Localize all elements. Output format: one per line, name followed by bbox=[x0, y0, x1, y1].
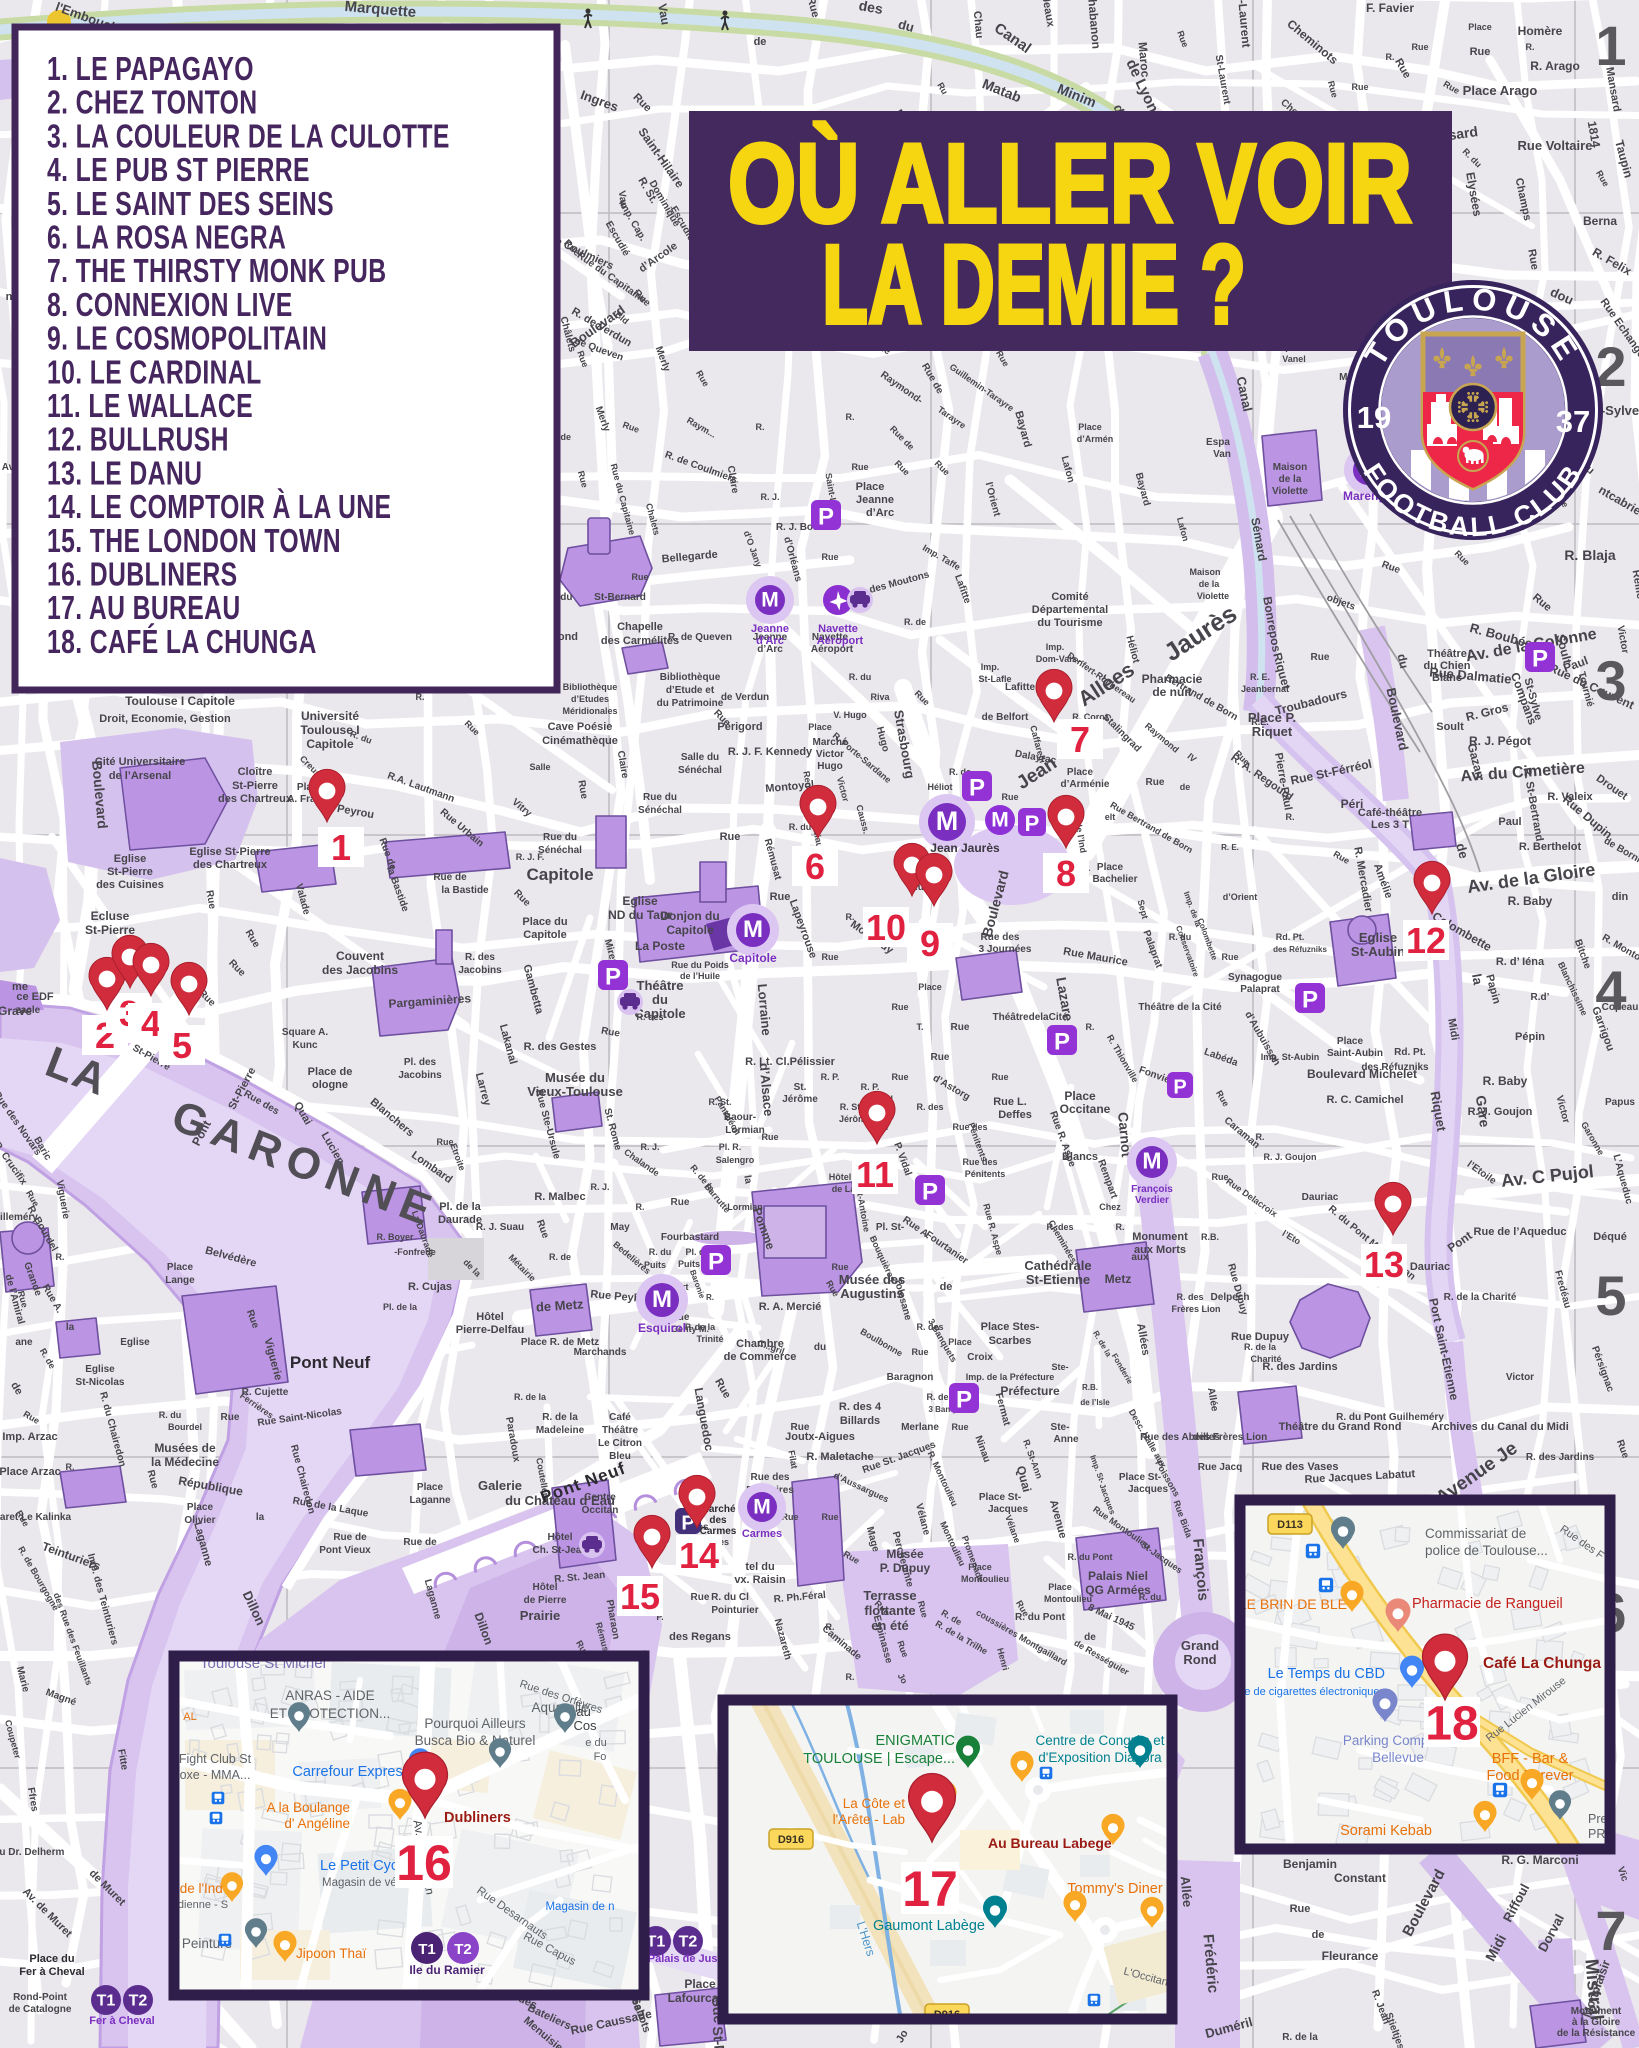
svg-text:Palaprat: Palaprat bbox=[1240, 984, 1280, 995]
svg-text:7: 7 bbox=[1595, 1899, 1626, 1962]
svg-text:Rue: Rue bbox=[951, 1422, 968, 1432]
svg-text:M: M bbox=[743, 916, 763, 943]
svg-text:Jean Jaurès: Jean Jaurès bbox=[930, 841, 1000, 855]
svg-text:des Cuisines: des Cuisines bbox=[96, 879, 164, 891]
svg-text:Occitan: Occitan bbox=[582, 1505, 619, 1516]
svg-text:R. de: R. de bbox=[549, 1252, 571, 1262]
svg-text:R. du: R. du bbox=[789, 822, 812, 832]
svg-text:Madeleine: Madeleine bbox=[536, 1425, 585, 1436]
svg-text:R. des 4: R. des 4 bbox=[839, 1401, 882, 1413]
svg-text:Place: Place bbox=[1048, 1582, 1072, 1592]
svg-text:Toulouse I Capitole: Toulouse I Capitole bbox=[125, 694, 235, 708]
svg-text:Place du: Place du bbox=[522, 916, 567, 928]
svg-text:7: 7 bbox=[1070, 719, 1090, 760]
svg-text:Théâtre du Grand Rond: Théâtre du Grand Rond bbox=[1279, 1421, 1402, 1433]
svg-text:Droit, Economie, Gestion: Droit, Economie, Gestion bbox=[99, 713, 231, 725]
svg-text:Rue: Rue bbox=[1221, 952, 1238, 962]
svg-text:Synagogue: Synagogue bbox=[1228, 972, 1282, 983]
svg-text:Place du: Place du bbox=[29, 1953, 74, 1965]
svg-text:ANRAS - AIDE: ANRAS - AIDE bbox=[285, 1688, 374, 1703]
svg-text:tel du: tel du bbox=[745, 1561, 774, 1573]
svg-text:de la: de la bbox=[1199, 579, 1221, 589]
svg-text:R. J. Goujon: R. J. Goujon bbox=[1468, 1106, 1533, 1118]
svg-text:Déqué: Déqué bbox=[1593, 1231, 1627, 1243]
svg-text:Dubliners: Dubliners bbox=[444, 1810, 511, 1826]
svg-text:Place: Place bbox=[918, 982, 942, 992]
svg-text:Espa: Espa bbox=[1206, 437, 1230, 448]
svg-text:T2: T2 bbox=[679, 1934, 698, 1951]
svg-text:11. LE WALLACE: 11. LE WALLACE bbox=[47, 389, 253, 425]
svg-text:Chapelle: Chapelle bbox=[617, 621, 663, 633]
svg-text:14: 14 bbox=[679, 1535, 719, 1576]
svg-text:R. Baby: R. Baby bbox=[1508, 894, 1553, 908]
svg-text:Grand: Grand bbox=[1181, 1638, 1219, 1653]
svg-text:R. J.: R. J. bbox=[640, 1142, 659, 1152]
svg-text:Salle: Salle bbox=[529, 762, 550, 772]
svg-text:R. C. Camichel: R. C. Camichel bbox=[1326, 1094, 1403, 1106]
svg-text:Place: Place bbox=[1078, 422, 1102, 432]
svg-text:Rue du: Rue du bbox=[543, 832, 577, 843]
svg-text:T2: T2 bbox=[454, 1941, 472, 1958]
svg-text:Maison: Maison bbox=[1189, 567, 1220, 577]
svg-text:Frères Lion: Frères Lion bbox=[1171, 1304, 1220, 1314]
svg-text:Navette: Navette bbox=[818, 623, 858, 635]
svg-text:din: din bbox=[1612, 891, 1629, 903]
svg-text:R. Maletache: R. Maletache bbox=[806, 1451, 873, 1463]
svg-text:1: 1 bbox=[1595, 14, 1626, 77]
svg-text:TOULOUSE | Escape...: TOULOUSE | Escape... bbox=[803, 1751, 955, 1767]
svg-text:St-Pierre: St-Pierre bbox=[107, 866, 153, 878]
svg-text:des Réfuzniks: des Réfuzniks bbox=[1273, 945, 1327, 954]
svg-text:Verdier: Verdier bbox=[1135, 1195, 1169, 1206]
svg-text:3. LA COULEUR DE LA CULOTTE: 3. LA COULEUR DE LA CULOTTE bbox=[47, 119, 450, 155]
svg-text:Magasin de n: Magasin de n bbox=[545, 1901, 614, 1913]
svg-text:M: M bbox=[761, 588, 779, 611]
svg-text:Rue: Rue bbox=[821, 952, 838, 962]
svg-text:Ile du Ramier: Ile du Ramier bbox=[409, 1963, 485, 1977]
svg-text:R.: R. bbox=[1286, 812, 1295, 822]
svg-text:Occitane: Occitane bbox=[1060, 1102, 1111, 1116]
svg-text:Jacobins: Jacobins bbox=[458, 965, 502, 976]
svg-text:Dauriac: Dauriac bbox=[1302, 1192, 1339, 1203]
svg-text:Rue: Rue bbox=[791, 1422, 810, 1433]
svg-text:Jipoon Thaï: Jipoon Thaï bbox=[296, 1946, 367, 1961]
svg-text:R. Baby: R. Baby bbox=[1483, 1074, 1528, 1088]
svg-text:Commissariat de: Commissariat de bbox=[1425, 1526, 1526, 1541]
svg-text:de l’Isle: de l’Isle bbox=[1080, 1398, 1110, 1407]
svg-text:Capitole: Capitole bbox=[526, 865, 593, 884]
svg-text:Rue des Abeilles: Rue des Abeilles bbox=[1140, 1432, 1220, 1443]
svg-text:St.: St. bbox=[794, 1082, 807, 1093]
svg-text:R. des: R. des bbox=[916, 1102, 943, 1112]
svg-text:Place: Place bbox=[1468, 22, 1492, 32]
svg-text:Montoulieu: Montoulieu bbox=[961, 1574, 1009, 1584]
svg-text:Rue: Rue bbox=[631, 572, 648, 582]
svg-text:Cité Universitaire: Cité Universitaire bbox=[95, 756, 185, 768]
svg-text:Musée: Musée bbox=[886, 1547, 924, 1561]
svg-text:Place: Place bbox=[808, 722, 832, 732]
svg-text:Pl. de la: Pl. de la bbox=[439, 1201, 481, 1213]
svg-text:Rue: Rue bbox=[831, 1262, 848, 1272]
svg-text:10. LE CARDINAL: 10. LE CARDINAL bbox=[47, 355, 262, 391]
svg-text:des Chartreux: des Chartreux bbox=[193, 859, 268, 871]
svg-text:5: 5 bbox=[172, 1025, 192, 1066]
svg-text:Van: Van bbox=[1213, 449, 1231, 460]
svg-text:dienne - S: dienne - S bbox=[178, 1899, 228, 1911]
svg-text:Place de: Place de bbox=[308, 1066, 353, 1078]
svg-text:ET PROTECTION...: ET PROTECTION... bbox=[270, 1706, 391, 1721]
svg-text:Fight Club St: Fight Club St bbox=[179, 1752, 252, 1766]
svg-text:BFF - Bar &: BFF - Bar & bbox=[1492, 1751, 1569, 1767]
svg-text:Charité: Charité bbox=[1250, 1354, 1281, 1364]
svg-text:R.B.: R.B. bbox=[1082, 1383, 1098, 1392]
svg-text:Homère: Homère bbox=[1518, 24, 1563, 38]
svg-text:Trinité: Trinité bbox=[696, 1334, 723, 1344]
svg-text:Rue: Rue bbox=[821, 1512, 838, 1522]
svg-text:P: P bbox=[1302, 987, 1318, 1014]
svg-text:ce EDF: ce EDF bbox=[16, 991, 54, 1003]
svg-text:St-Pierre: St-Pierre bbox=[232, 780, 278, 792]
svg-text:de: de bbox=[1084, 1632, 1096, 1643]
svg-text:R.: R. bbox=[56, 1252, 65, 1262]
svg-text:P. Dupuy: P. Dupuy bbox=[880, 1561, 931, 1575]
svg-text:du Patrimoine: du Patrimoine bbox=[657, 698, 724, 709]
svg-text:Jeanne: Jeanne bbox=[856, 494, 894, 506]
svg-text:ENIGMATIC: ENIGMATIC bbox=[876, 1733, 955, 1749]
svg-text:R. P.: R. P. bbox=[861, 1082, 880, 1092]
svg-text:Pont Vieux: Pont Vieux bbox=[319, 1545, 371, 1556]
svg-text:la: la bbox=[66, 1322, 75, 1333]
svg-text:Jacobins: Jacobins bbox=[398, 1070, 442, 1081]
svg-text:R. Arago: R. Arago bbox=[1530, 59, 1580, 73]
svg-text:Sénéchal: Sénéchal bbox=[678, 765, 722, 776]
svg-text:elt: elt bbox=[1105, 812, 1116, 822]
svg-text:Bibliothèque: Bibliothèque bbox=[563, 682, 618, 692]
svg-text:LE BRIN DE BLE: LE BRIN DE BLE bbox=[1239, 1596, 1347, 1612]
svg-text:Hôtel: Hôtel bbox=[829, 1172, 852, 1182]
svg-text:ane: ane bbox=[15, 1337, 33, 1348]
svg-text:Hugo: Hugo bbox=[817, 761, 843, 772]
svg-text:R.B.: R.B. bbox=[1201, 1232, 1219, 1242]
svg-text:4: 4 bbox=[141, 1003, 161, 1044]
svg-text:Place Arzac: Place Arzac bbox=[0, 1466, 61, 1478]
svg-text:Gaumont Labège: Gaumont Labège bbox=[873, 1918, 985, 1934]
svg-text:P: P bbox=[1054, 1029, 1070, 1056]
svg-text:d’Etudes: d’Etudes bbox=[571, 694, 609, 704]
svg-text:M: M bbox=[753, 1495, 771, 1518]
svg-text:R. E.: R. E. bbox=[1250, 672, 1270, 682]
svg-text:Eglise: Eglise bbox=[85, 1364, 115, 1375]
svg-text:de la Résistance: de la Résistance bbox=[1557, 2028, 1636, 2039]
svg-text:zacle: zacle bbox=[16, 1005, 41, 1016]
svg-text:M: M bbox=[936, 806, 959, 836]
svg-text:Eglise: Eglise bbox=[1359, 930, 1397, 945]
svg-text:d’Etude et: d’Etude et bbox=[666, 685, 715, 696]
svg-text:Sorami Kebab: Sorami Kebab bbox=[1340, 1823, 1432, 1839]
svg-text:T1: T1 bbox=[97, 1993, 116, 2010]
svg-text:R. Boyer: R. Boyer bbox=[376, 1232, 414, 1242]
svg-text:6: 6 bbox=[805, 846, 825, 887]
svg-text:R. Cujas: R. Cujas bbox=[408, 1281, 452, 1293]
svg-text:du: du bbox=[652, 992, 668, 1007]
svg-text:4. LE PUB ST PIERRE: 4. LE PUB ST PIERRE bbox=[47, 153, 310, 189]
svg-text:Marché: Marché bbox=[812, 737, 847, 748]
svg-text:Rue: Rue bbox=[1351, 82, 1368, 92]
svg-text:5: 5 bbox=[1595, 1264, 1626, 1327]
svg-text:Laganne: Laganne bbox=[409, 1495, 451, 1506]
svg-text:Marchands: Marchands bbox=[574, 1347, 627, 1358]
svg-text:R. de la: R. de la bbox=[1244, 1342, 1277, 1352]
svg-text:Vanel: Vanel bbox=[1282, 354, 1306, 364]
svg-text:Rue du: Rue du bbox=[643, 792, 677, 803]
svg-text:oxe - MMA...: oxe - MMA... bbox=[180, 1768, 251, 1782]
svg-text:P: P bbox=[969, 775, 985, 802]
svg-text:des Regans: des Regans bbox=[669, 1631, 731, 1643]
svg-text:de: de bbox=[1312, 1929, 1325, 1941]
svg-text:P: P bbox=[708, 1249, 724, 1276]
svg-text:du: du bbox=[1395, 653, 1412, 670]
svg-text:R. de Queven: R. de Queven bbox=[668, 632, 732, 643]
svg-text:Puits: Puits bbox=[644, 1260, 666, 1270]
svg-text:La Côte et: La Côte et bbox=[843, 1796, 906, 1811]
svg-text:R.E.: R.E. bbox=[1251, 717, 1269, 727]
svg-text:Cathédrale: Cathédrale bbox=[1024, 1258, 1091, 1273]
svg-text:St-Bernard: St-Bernard bbox=[594, 592, 646, 603]
svg-text:tique de cigarettes électroniq: tique de cigarettes électroniques bbox=[1227, 1686, 1386, 1698]
svg-text:Rond: Rond bbox=[1183, 1652, 1216, 1667]
svg-text:R. de la Charité: R. de la Charité bbox=[1444, 1292, 1517, 1303]
svg-text:R. des: R. des bbox=[1176, 1292, 1203, 1302]
svg-text:Rue: Rue bbox=[821, 552, 838, 562]
svg-text:Salengro: Salengro bbox=[716, 1155, 755, 1165]
svg-text:AL: AL bbox=[183, 1711, 196, 1723]
svg-text:Montoulieu: Montoulieu bbox=[1044, 1594, 1092, 1604]
svg-text:Place: Place bbox=[1337, 1036, 1364, 1047]
svg-text:Rue des: Rue des bbox=[962, 1157, 997, 1167]
svg-text:Prairie: Prairie bbox=[520, 1608, 560, 1623]
svg-text:Rue: Rue bbox=[221, 1412, 240, 1423]
svg-text:P: P bbox=[956, 1387, 972, 1414]
svg-text:la Bastide: la Bastide bbox=[441, 885, 489, 896]
svg-text:P: P bbox=[605, 964, 621, 991]
svg-text:Eglise: Eglise bbox=[114, 853, 146, 865]
svg-text:police de Toulouse...: police de Toulouse... bbox=[1425, 1543, 1548, 1558]
svg-text:Capitole: Capitole bbox=[729, 951, 777, 965]
svg-text:Rue: Rue bbox=[691, 1592, 710, 1603]
svg-text:Péri: Péri bbox=[1341, 797, 1364, 811]
svg-text:Place: Place bbox=[1064, 1089, 1096, 1103]
svg-text:Théâtre de la Cité: Théâtre de la Cité bbox=[1138, 1002, 1222, 1013]
svg-text:St-M: St-M bbox=[710, 2026, 729, 2048]
svg-text:Méridionales: Méridionales bbox=[562, 706, 617, 716]
svg-text:Place: Place bbox=[1097, 862, 1124, 873]
svg-text:Archives du Canal du Midi: Archives du Canal du Midi bbox=[1431, 1421, 1569, 1433]
svg-text:Paul: Paul bbox=[1498, 816, 1521, 828]
svg-text:Bachelier: Bachelier bbox=[1092, 874, 1137, 885]
svg-text:Violette: Violette bbox=[1272, 486, 1308, 497]
svg-text:Préfecture: Préfecture bbox=[1000, 1384, 1060, 1398]
svg-text:Rue Voltaire: Rue Voltaire bbox=[1518, 138, 1593, 153]
svg-text:Monument: Monument bbox=[1132, 1231, 1188, 1243]
svg-text:Rue: Rue bbox=[991, 1072, 1008, 1082]
svg-text:de: de bbox=[754, 36, 767, 48]
svg-text:Rue du Dr. Delherm: Rue du Dr. Delherm bbox=[0, 1847, 65, 1858]
svg-text:16. DUBLINERS: 16. DUBLINERS bbox=[47, 557, 237, 593]
svg-text:d’Arc: d’Arc bbox=[866, 507, 894, 519]
svg-text:Imp.: Imp. bbox=[1046, 642, 1065, 652]
svg-text:Bourdel: Bourdel bbox=[168, 1422, 202, 1432]
svg-text:R. du Cl: R. du Cl bbox=[711, 1592, 749, 1603]
svg-text:de Commerce: de Commerce bbox=[724, 1351, 797, 1363]
svg-text:Eglise St-Pierre: Eglise St-Pierre bbox=[189, 846, 270, 858]
svg-text:de Belfort: de Belfort bbox=[982, 712, 1029, 723]
svg-text:Chambre: Chambre bbox=[736, 1338, 784, 1350]
svg-text:13. LE DANU: 13. LE DANU bbox=[47, 456, 202, 492]
svg-text:e du: e du bbox=[585, 1737, 606, 1749]
svg-text:19: 19 bbox=[1357, 400, 1391, 435]
svg-text:Pl. St-: Pl. St- bbox=[876, 1222, 904, 1233]
svg-text:R. de la: R. de la bbox=[514, 1392, 547, 1402]
svg-text:Soult: Soult bbox=[1436, 721, 1464, 733]
svg-text:du Tourisme: du Tourisme bbox=[1037, 617, 1102, 629]
svg-text:Imp. Arzac: Imp. Arzac bbox=[2, 1431, 57, 1443]
svg-text:St-Aubin: St-Aubin bbox=[1351, 944, 1405, 959]
svg-text:Fer à Cheval: Fer à Cheval bbox=[19, 1966, 84, 1978]
svg-text:Rue: Rue bbox=[720, 831, 741, 843]
svg-text:Rue: Rue bbox=[671, 1197, 690, 1208]
svg-text:M: M bbox=[991, 808, 1009, 831]
svg-text:R. du Pont: R. du Pont bbox=[1068, 1552, 1113, 1562]
svg-text:16: 16 bbox=[396, 1835, 452, 1891]
svg-text:Place St-: Place St- bbox=[979, 1492, 1021, 1503]
svg-text:Café-théâtre: Café-théâtre bbox=[1358, 807, 1422, 819]
svg-text:Chau: Chau bbox=[971, 11, 985, 39]
svg-text:11: 11 bbox=[856, 1154, 894, 1195]
svg-text:Les 3 T: Les 3 T bbox=[1371, 819, 1409, 831]
svg-text:37: 37 bbox=[1556, 404, 1590, 439]
svg-text:R. J. Goujon: R. J. Goujon bbox=[1264, 1152, 1317, 1162]
svg-text:R.: R. bbox=[66, 1462, 75, 1472]
svg-text:Violette: Violette bbox=[1197, 591, 1229, 601]
svg-text:Dauriac: Dauriac bbox=[1410, 1261, 1450, 1273]
svg-text:Héliot: Héliot bbox=[927, 782, 952, 792]
svg-text:Rue Jacq: Rue Jacq bbox=[1198, 1462, 1242, 1473]
svg-text:A la Boulange: A la Boulange bbox=[267, 1800, 350, 1815]
svg-text:Rue: Rue bbox=[1470, 46, 1491, 58]
svg-text:Pourquoi Ailleurs: Pourquoi Ailleurs bbox=[424, 1716, 526, 1731]
svg-text:de Catalogne: de Catalogne bbox=[9, 2004, 72, 2015]
svg-text:Berna: Berna bbox=[1583, 214, 1617, 228]
svg-text:Metz: Metz bbox=[1105, 1272, 1132, 1286]
svg-text:de l’Huile: de l’Huile bbox=[680, 971, 720, 981]
svg-text:de: de bbox=[940, 1281, 953, 1293]
svg-text:R. Blaja: R. Blaja bbox=[1564, 547, 1616, 563]
svg-text:Rue: Rue bbox=[891, 1072, 908, 1082]
svg-text:Rue de: Rue de bbox=[403, 1537, 437, 1548]
svg-text:du: du bbox=[814, 1342, 826, 1353]
svg-text:Ste-: Ste- bbox=[1051, 1422, 1070, 1433]
svg-text:R. du: R. du bbox=[649, 1247, 672, 1257]
svg-text:14. LE COMPTOIR À LA UNE: 14. LE COMPTOIR À LA UNE bbox=[47, 488, 391, 526]
svg-text:R. Malbec: R. Malbec bbox=[534, 1191, 585, 1203]
svg-text:aux Morts: aux Morts bbox=[1134, 1244, 1186, 1256]
svg-text:R.: R. bbox=[636, 1202, 645, 1212]
svg-text:Deffes: Deffes bbox=[998, 1109, 1032, 1121]
svg-text:Jacques: Jacques bbox=[988, 1504, 1028, 1515]
svg-text:Scarbes: Scarbes bbox=[989, 1335, 1032, 1347]
svg-text:Comité: Comité bbox=[1051, 591, 1088, 603]
svg-text:Pharmacie de Rangueil: Pharmacie de Rangueil bbox=[1412, 1596, 1563, 1612]
svg-text:P: P bbox=[1532, 646, 1548, 673]
svg-text:1: 1 bbox=[331, 827, 351, 868]
svg-text:R.d’: R.d’ bbox=[1531, 992, 1550, 1003]
svg-text:R. du: R. du bbox=[1139, 1592, 1162, 1602]
svg-text:Maison: Maison bbox=[1273, 462, 1307, 473]
svg-text:Rue: Rue bbox=[931, 1052, 950, 1063]
svg-text:Rue: Rue bbox=[1311, 652, 1330, 663]
svg-text:Rue de l’Aqueduc: Rue de l’Aqueduc bbox=[1474, 1226, 1567, 1238]
svg-text:Bibliothèque: Bibliothèque bbox=[660, 672, 721, 683]
svg-text:Sénéchal: Sénéchal bbox=[638, 805, 682, 816]
svg-text:à la Gloire: à la Gloire bbox=[1572, 2017, 1621, 2028]
svg-text:R. du: R. du bbox=[849, 672, 872, 682]
svg-text:ologne: ologne bbox=[312, 1079, 348, 1091]
svg-text:Donjon du: Donjon du bbox=[660, 909, 719, 923]
svg-text:Bellevue: Bellevue bbox=[1372, 1750, 1424, 1765]
svg-text:R. d’ Iéna: R. d’ Iéna bbox=[1496, 956, 1545, 968]
svg-text:Place: Place bbox=[856, 481, 885, 493]
svg-text:R.: R. bbox=[1086, 1022, 1095, 1032]
svg-text:Rue: Rue bbox=[911, 1347, 928, 1357]
svg-text:St-Lafle: St-Lafle bbox=[978, 674, 1011, 684]
svg-text:9: 9 bbox=[920, 923, 940, 964]
svg-text:Esquirol: Esquirol bbox=[638, 1321, 686, 1335]
svg-text:R. E.: R. E. bbox=[1221, 843, 1239, 852]
svg-text:R. du: R. du bbox=[159, 1410, 182, 1420]
svg-text:Départemental: Départemental bbox=[1032, 604, 1108, 616]
svg-text:Pointurier: Pointurier bbox=[711, 1605, 758, 1616]
svg-text:de Verdun: de Verdun bbox=[721, 692, 769, 703]
svg-text:Place: Place bbox=[948, 1337, 972, 1347]
svg-text:Merlane: Merlane bbox=[901, 1422, 939, 1433]
svg-text:l'Arête - Lab: l'Arête - Lab bbox=[833, 1812, 905, 1827]
svg-text:Benjamin: Benjamin bbox=[1283, 1857, 1337, 1871]
svg-text:Pl. R.: Pl. R. bbox=[719, 1142, 742, 1152]
svg-text:Capitole: Capitole bbox=[666, 923, 714, 937]
svg-text:Kunc: Kunc bbox=[293, 1040, 318, 1051]
svg-text:Palais Niel: Palais Niel bbox=[1088, 1569, 1148, 1583]
svg-text:17. AU BUREAU: 17. AU BUREAU bbox=[47, 591, 241, 627]
svg-text:T2: T2 bbox=[129, 1993, 148, 2010]
svg-text:Place: Place bbox=[187, 1502, 214, 1513]
svg-text:T.: T. bbox=[916, 1022, 923, 1032]
svg-text:3: 3 bbox=[1595, 649, 1626, 712]
svg-text:M: M bbox=[1142, 1148, 1161, 1174]
svg-text:Place St-: Place St- bbox=[1119, 1472, 1161, 1483]
svg-text:3 Journées: 3 Journées bbox=[979, 944, 1032, 955]
svg-text:P: P bbox=[818, 504, 834, 531]
svg-text:St-Pierre: St-Pierre bbox=[85, 923, 135, 937]
svg-text:St-Etienne: St-Etienne bbox=[1026, 1272, 1090, 1287]
svg-text:P: P bbox=[1025, 811, 1040, 836]
svg-text:Terrasse: Terrasse bbox=[863, 1588, 916, 1603]
svg-text:Université: Université bbox=[301, 709, 359, 723]
svg-text:Théâtre: Théâtre bbox=[637, 978, 684, 993]
svg-text:d'Arc: d'Arc bbox=[756, 635, 784, 647]
svg-text:Busca Bio & Naturel: Busca Bio & Naturel bbox=[415, 1733, 536, 1748]
svg-text:4: 4 bbox=[1595, 959, 1626, 1022]
svg-text:Jeanbernat: Jeanbernat bbox=[1241, 684, 1289, 694]
